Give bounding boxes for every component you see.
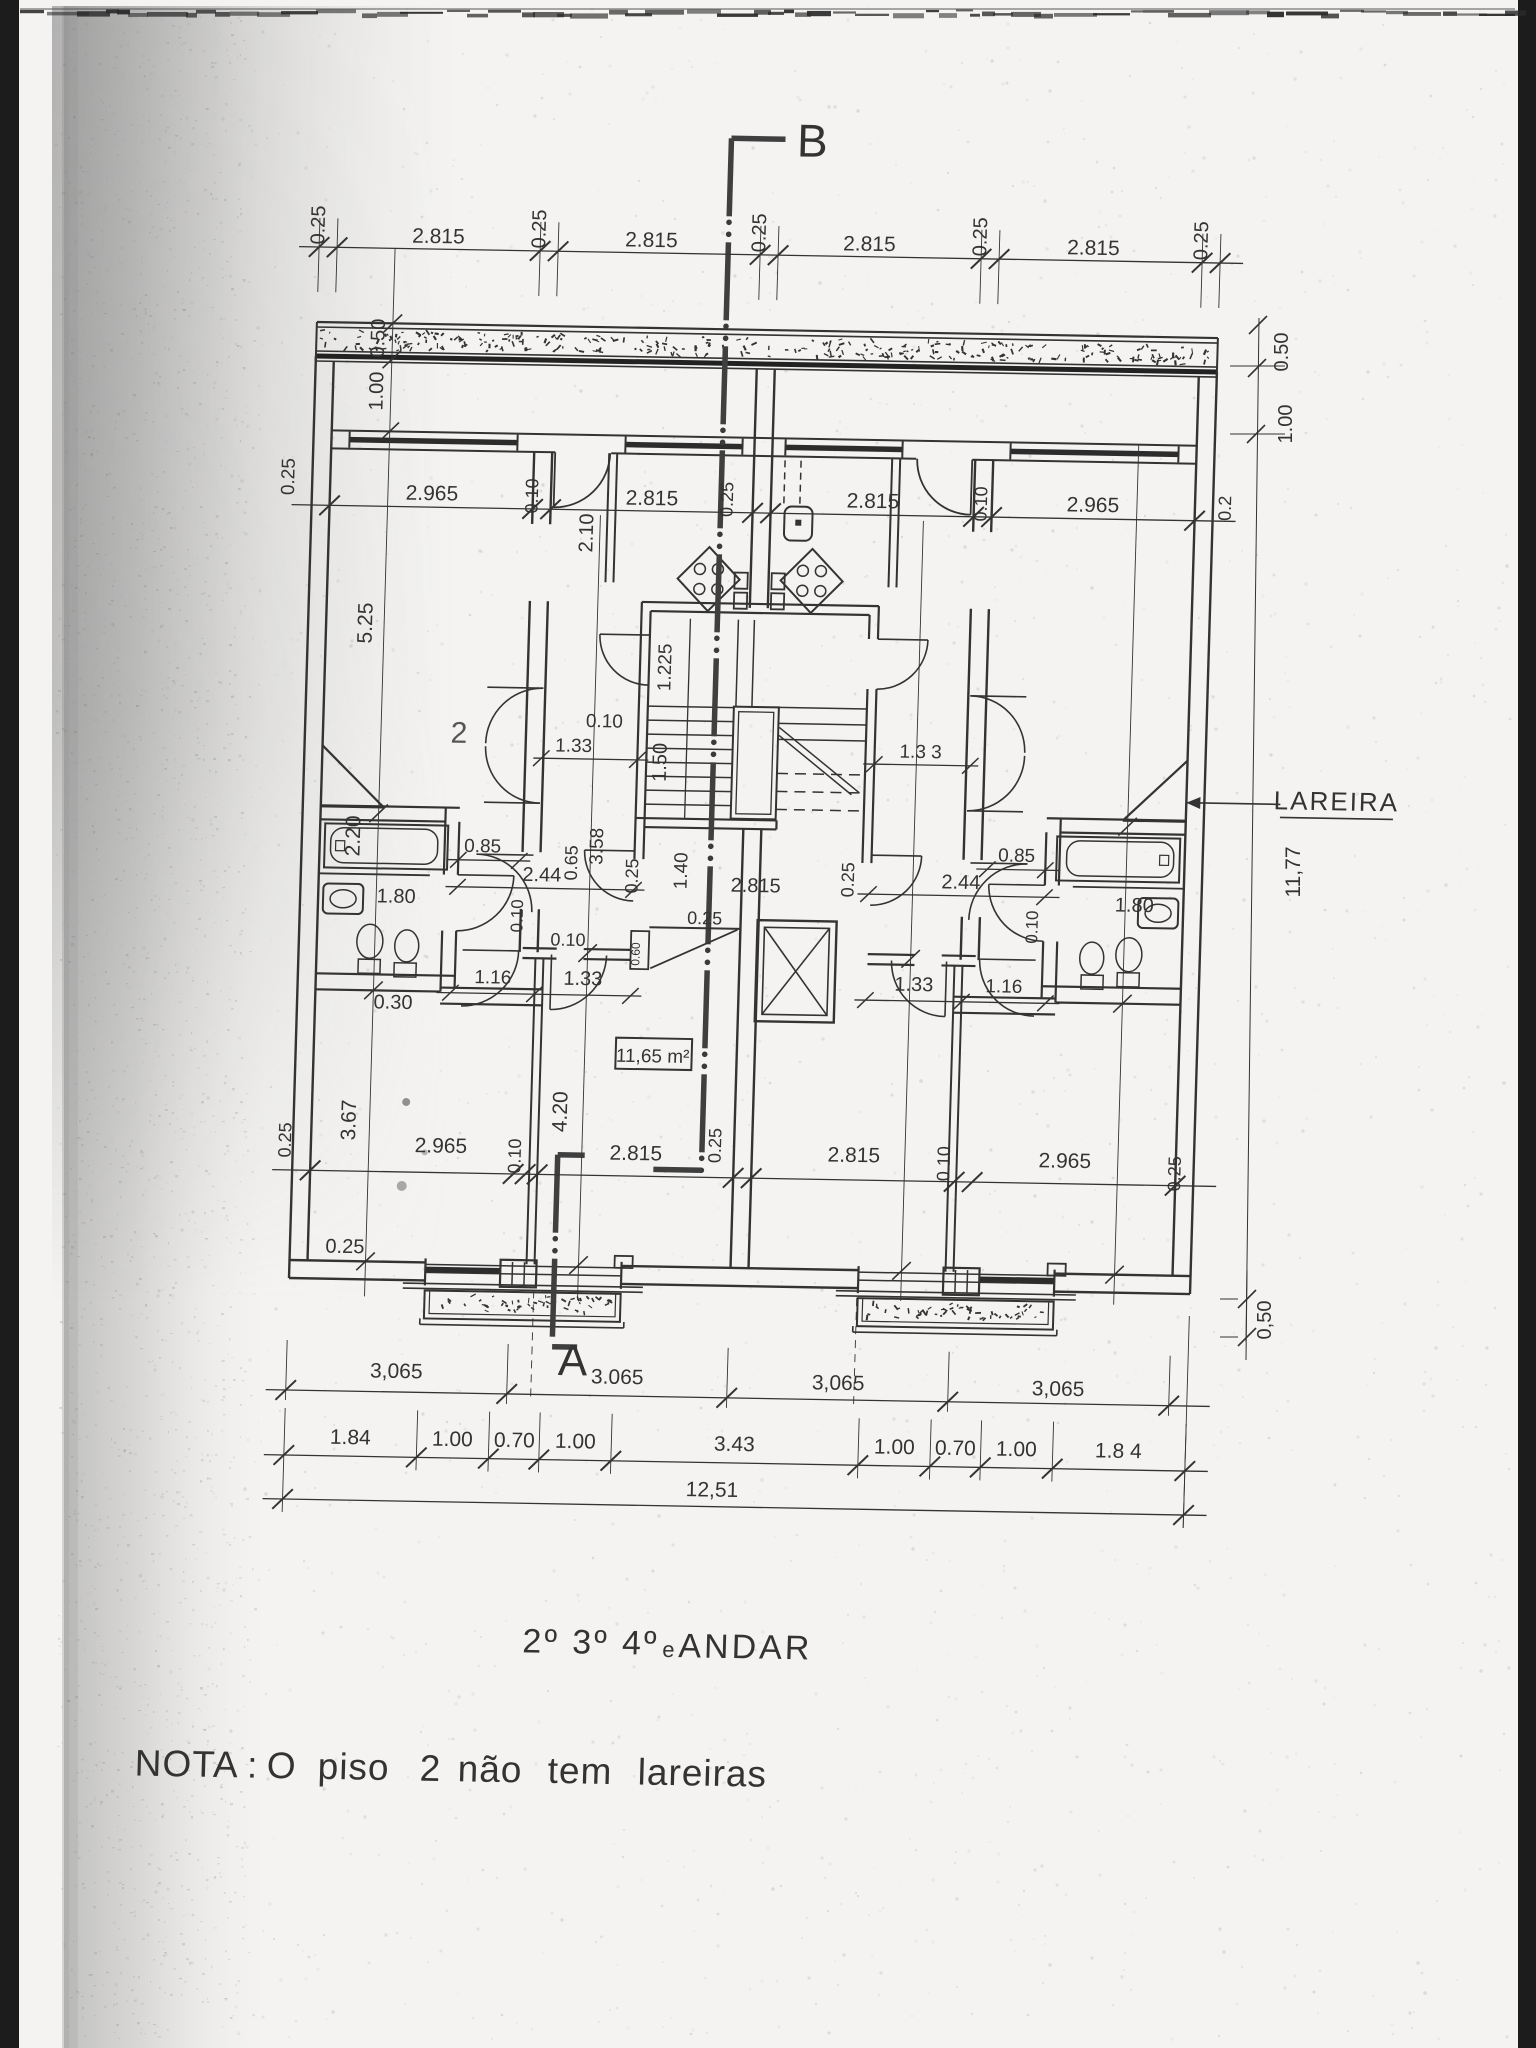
svg-text:3,065: 3,065 xyxy=(1032,1377,1085,1401)
svg-text:0.85: 0.85 xyxy=(998,845,1036,867)
svg-text:2.815: 2.815 xyxy=(625,228,678,252)
svg-text:ANDAR: ANDAR xyxy=(678,1627,813,1667)
svg-text:1.16: 1.16 xyxy=(985,976,1023,998)
svg-text:2º 3º 4º: 2º 3º 4º xyxy=(522,1622,660,1662)
svg-text:LAREIRA: LAREIRA xyxy=(1273,785,1399,817)
svg-text:0.25: 0.25 xyxy=(1164,1156,1185,1191)
svg-text:0.10: 0.10 xyxy=(970,486,991,521)
svg-text:A: A xyxy=(557,1336,588,1386)
svg-text:1.00: 1.00 xyxy=(996,1438,1038,1462)
svg-text:11,65 m²: 11,65 m² xyxy=(616,1046,690,1068)
svg-text:0.25: 0.25 xyxy=(716,482,737,517)
svg-text:0.65: 0.65 xyxy=(561,845,582,880)
svg-text:0.10: 0.10 xyxy=(507,899,527,932)
svg-text:2.815: 2.815 xyxy=(609,1142,662,1166)
svg-text:3,065: 3,065 xyxy=(370,1359,423,1383)
svg-text:5.25: 5.25 xyxy=(354,602,378,643)
svg-text:3.67: 3.67 xyxy=(337,1099,361,1140)
svg-text:0.10: 0.10 xyxy=(504,1138,525,1173)
svg-text:2.815: 2.815 xyxy=(412,225,465,249)
svg-text:1.33: 1.33 xyxy=(555,735,593,757)
svg-text:2.965: 2.965 xyxy=(405,482,458,506)
svg-text:1.00: 1.00 xyxy=(1275,405,1297,444)
svg-text:0.85: 0.85 xyxy=(464,836,502,858)
svg-text:1.225: 1.225 xyxy=(654,643,676,691)
svg-text:2.44: 2.44 xyxy=(522,864,562,887)
svg-text:0.10: 0.10 xyxy=(521,478,542,513)
svg-text:2.815: 2.815 xyxy=(846,490,899,514)
svg-text:0.25: 0.25 xyxy=(621,858,642,893)
svg-text:1.8 4: 1.8 4 xyxy=(1095,1439,1143,1463)
svg-text:2: 2 xyxy=(450,717,468,750)
svg-text:1.50: 1.50 xyxy=(649,743,672,782)
svg-text:1.00: 1.00 xyxy=(432,1428,474,1452)
svg-text:12,51: 12,51 xyxy=(685,1478,738,1502)
svg-text:2.965: 2.965 xyxy=(1038,1149,1091,1173)
svg-text:0.50: 0.50 xyxy=(1271,333,1293,372)
svg-text:0.25: 0.25 xyxy=(528,209,551,248)
svg-text:2.20: 2.20 xyxy=(341,815,365,856)
svg-text:0.25: 0.25 xyxy=(837,862,858,897)
svg-text:3,065: 3,065 xyxy=(812,1371,865,1395)
svg-text:3.58: 3.58 xyxy=(586,828,608,865)
svg-text:0.25: 0.25 xyxy=(705,1128,726,1163)
svg-text:3.065: 3.065 xyxy=(591,1365,644,1389)
svg-text:0.25: 0.25 xyxy=(1190,221,1213,260)
svg-text:0.2: 0.2 xyxy=(1215,496,1236,521)
svg-text:2: 2 xyxy=(419,1747,442,1789)
svg-text:tem: tem xyxy=(547,1749,613,1792)
svg-text:2.10: 2.10 xyxy=(575,513,598,552)
svg-text:0.60: 0.60 xyxy=(628,942,643,966)
svg-text:0.10: 0.10 xyxy=(933,1146,954,1181)
svg-text:2.815: 2.815 xyxy=(625,487,678,511)
svg-text:1.16: 1.16 xyxy=(474,967,512,989)
svg-text:0.25: 0.25 xyxy=(325,1236,365,1259)
svg-text:1.84: 1.84 xyxy=(330,1426,372,1450)
svg-text:0.30: 0.30 xyxy=(373,991,413,1014)
svg-text:2.44: 2.44 xyxy=(941,871,981,894)
svg-text:1.80: 1.80 xyxy=(376,885,416,908)
svg-text:1.3 3: 1.3 3 xyxy=(899,742,942,764)
svg-text:2.965: 2.965 xyxy=(414,1134,467,1158)
svg-text:0.10: 0.10 xyxy=(586,711,624,733)
svg-text:B: B xyxy=(796,114,828,167)
svg-text:piso: piso xyxy=(317,1745,390,1788)
svg-text:0.25: 0.25 xyxy=(275,1122,296,1157)
svg-text:0.10: 0.10 xyxy=(550,929,586,950)
svg-text:NOTA : O: NOTA : O xyxy=(134,1742,297,1787)
svg-text:0.25: 0.25 xyxy=(307,205,330,244)
svg-text:0.70: 0.70 xyxy=(494,1429,536,1453)
svg-text:1.40: 1.40 xyxy=(671,852,693,889)
svg-text:não: não xyxy=(457,1747,523,1790)
svg-text:4.20: 4.20 xyxy=(548,1091,572,1132)
svg-text:1.00: 1.00 xyxy=(874,1435,916,1459)
svg-text:lareiras: lareiras xyxy=(637,1750,768,1794)
svg-text:0.70: 0.70 xyxy=(935,1437,977,1461)
svg-text:1.33: 1.33 xyxy=(563,968,603,991)
svg-text:0,50: 0,50 xyxy=(1254,1301,1276,1340)
svg-text:1.00: 1.00 xyxy=(365,371,388,410)
svg-text:2.815: 2.815 xyxy=(1067,236,1120,260)
svg-text:0.10: 0.10 xyxy=(1022,910,1042,943)
svg-text:2.815: 2.815 xyxy=(843,232,896,256)
svg-text:2.965: 2.965 xyxy=(1066,493,1119,517)
svg-text:0.25: 0.25 xyxy=(969,217,992,256)
svg-text:11,77: 11,77 xyxy=(1282,847,1305,898)
svg-text:1.00: 1.00 xyxy=(555,1430,597,1454)
svg-text:e: e xyxy=(662,1637,675,1662)
svg-text:3.43: 3.43 xyxy=(714,1433,756,1457)
svg-text:0.25: 0.25 xyxy=(748,213,771,252)
svg-text:2.815: 2.815 xyxy=(730,875,781,898)
svg-text:1.80: 1.80 xyxy=(1115,895,1155,918)
svg-text:2.815: 2.815 xyxy=(827,1144,880,1168)
svg-text:1.33: 1.33 xyxy=(894,974,934,997)
svg-text:0.25: 0.25 xyxy=(687,908,723,929)
svg-text:0.50: 0.50 xyxy=(367,318,390,357)
svg-text:0.25: 0.25 xyxy=(278,458,300,495)
